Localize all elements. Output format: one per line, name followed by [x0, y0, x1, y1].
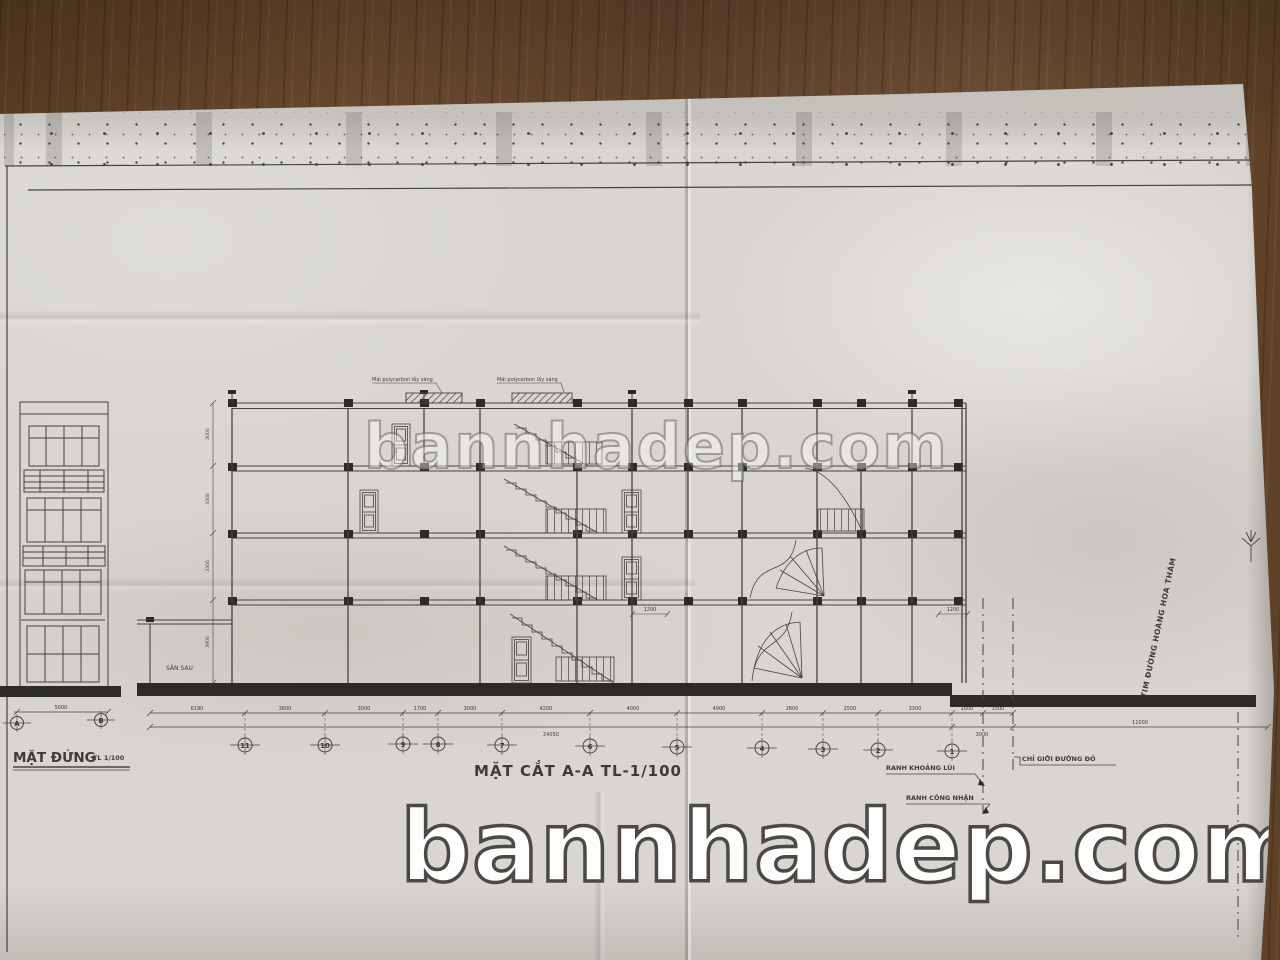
- setback-label: RANH KHOẢNG LÙI: [886, 762, 955, 772]
- grid-bubble: 4: [747, 738, 777, 758]
- blueprint-paper: 5000 A B MẶT ĐỨNG TL 1/100: [0, 0, 1280, 960]
- skylight-label: Mái polycarbon lấy sáng: [372, 376, 433, 383]
- setback-label-group: RANH KHOẢNG LÙI: [886, 762, 985, 786]
- bubble-label: 10: [320, 742, 330, 750]
- dim-label: 1500: [992, 706, 1005, 712]
- grid-bubbles: 11 10 9 8 7: [230, 713, 967, 761]
- road-axis-group: TIM ĐƯỜNG HOÀNG HOA THÁM: [1139, 530, 1260, 698]
- grid-bubble: 9: [388, 734, 418, 754]
- story-dim-label: 3000: [205, 428, 211, 440]
- bubble-label: 8: [436, 741, 441, 749]
- bubble-label: 4: [760, 745, 765, 753]
- dim-label: 4900: [713, 706, 726, 712]
- inner-dims: 1200 1200: [630, 607, 970, 617]
- bubble-label: 9: [401, 741, 406, 749]
- elevation-ground-bar: [0, 686, 121, 697]
- dim-label: 4000: [627, 706, 640, 712]
- story-dim-chain: 3000 3300 3300 3900: [205, 400, 216, 686]
- section-title: MẶT CẮT A-A TL-1/100: [474, 759, 682, 780]
- grid-bubble: 1: [937, 741, 967, 761]
- central-staircase: [504, 424, 614, 683]
- section-drawing: Mái polycarbon lấy sáng Mái polycarbon l…: [137, 376, 1256, 707]
- dimension-chain: 6190 3600 3000 1700 3000 4200 4000 4900 …: [147, 706, 1271, 738]
- elevation-scale: TL 1/100: [93, 754, 125, 762]
- grid-bubble: 8: [423, 734, 453, 754]
- story-dim-label: 3300: [205, 560, 211, 572]
- bubble-label: 6: [588, 743, 593, 751]
- elevation-grid-bubble-b: B: [87, 711, 115, 729]
- backyard-block: SÂN SAU: [137, 617, 232, 683]
- skylight-label: Mái polycarbon lấy sáng: [497, 376, 558, 383]
- grid-bubble: 11: [230, 735, 260, 755]
- red-line-label-group: CHỈ GIỚI ĐƯỜNG ĐỎ: [1014, 753, 1116, 765]
- red-line-label: CHỈ GIỚI ĐƯỜNG ĐỎ: [1022, 753, 1096, 763]
- dim-label: 3300: [909, 706, 922, 712]
- elevation-title: MẶT ĐỨNG: [13, 748, 96, 766]
- road-axis-label: TIM ĐƯỜNG HOÀNG HOA THÁM: [1139, 557, 1178, 699]
- grid-bubble: 3: [808, 739, 838, 759]
- dim-label: 1700: [414, 706, 427, 712]
- yard-label: SÂN SAU: [166, 665, 193, 672]
- elevation-width-dim: 5000: [55, 705, 68, 711]
- beam-blocks: [228, 399, 963, 605]
- curved-staircase: [750, 468, 864, 681]
- inner-dim-label: 1200: [644, 607, 657, 613]
- bubble-label: 3: [821, 746, 826, 754]
- dim-label: 4200: [540, 706, 553, 712]
- tree-symbol: [1242, 530, 1260, 562]
- bubble-label: 7: [500, 742, 505, 750]
- bubble-label: B: [98, 717, 103, 725]
- photo-scene: 5000 A B MẶT ĐỨNG TL 1/100: [0, 0, 1280, 960]
- dim-label: 6190: [191, 706, 204, 712]
- dim-label: 3000: [464, 706, 477, 712]
- story-dim-label: 3900: [205, 636, 211, 648]
- skylights: Mái polycarbon lấy sáng Mái polycarbon l…: [372, 376, 572, 403]
- grid-bubble: 6: [575, 736, 605, 756]
- story-dim-label: 3300: [205, 493, 211, 505]
- right-annotations: RANH KHOẢNG LÙI RANH CÔNG NHẬN CHỈ GIỚI …: [886, 530, 1260, 940]
- grid-bubble: 10: [310, 735, 340, 755]
- bubble-label: 5: [675, 744, 680, 752]
- bubble-label: 1: [950, 748, 955, 756]
- dim-label: 3000: [358, 706, 371, 712]
- grid-bubble: 2: [863, 740, 893, 760]
- total-dim-label: 24050: [543, 732, 559, 738]
- dim-label: 1600: [961, 706, 974, 712]
- grid-bubble: 7: [487, 735, 517, 755]
- bubble-label: A: [14, 720, 20, 728]
- boundary-label: RANH CÔNG NHẬN: [906, 793, 974, 802]
- dim-label: 3600: [279, 706, 292, 712]
- sheet-frame-lines: [5, 160, 1252, 952]
- blueprint-drawing: 5000 A B MẶT ĐỨNG TL 1/100: [0, 0, 1280, 960]
- dim-label: 2500: [844, 706, 857, 712]
- bubble-label: 11: [240, 742, 250, 750]
- total-dim-label: 3000: [976, 732, 989, 738]
- section-ground-bar: [137, 683, 952, 696]
- boundary-label-group: RANH CÔNG NHẬN: [906, 793, 990, 814]
- elevation-drawing: 5000 A B MẶT ĐỨNG TL 1/100: [0, 402, 130, 770]
- dim-label: 2800: [786, 706, 799, 712]
- inner-dim-label: 1200: [947, 607, 960, 613]
- total-dim-label: 11000: [1132, 720, 1148, 726]
- bubble-label: 2: [876, 747, 881, 755]
- grid-bubble: 5: [662, 737, 692, 757]
